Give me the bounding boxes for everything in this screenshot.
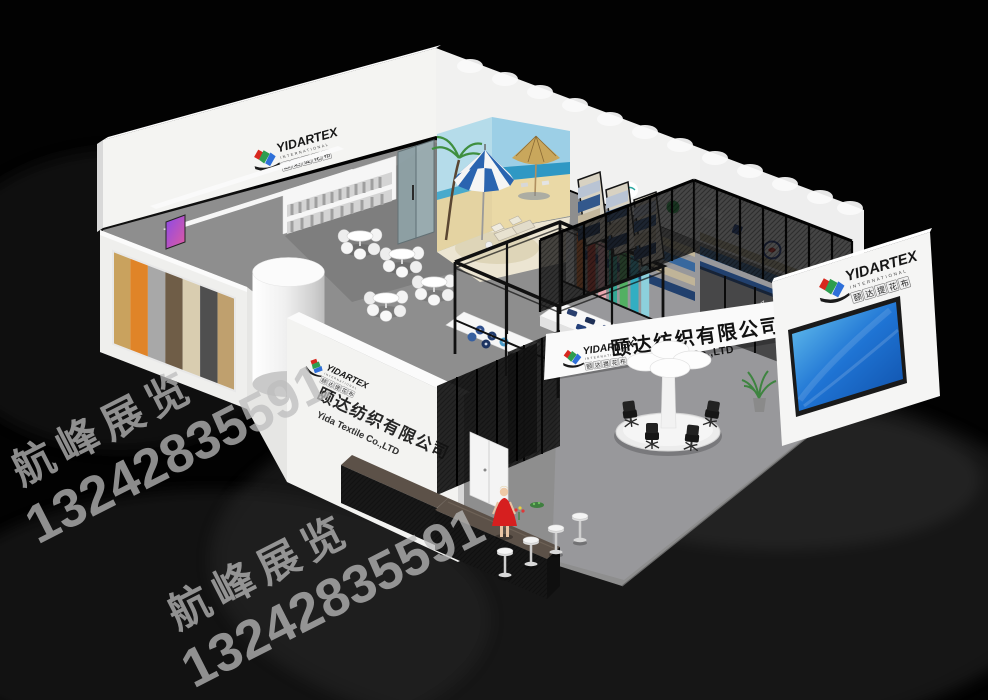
wall-end-cap [97, 140, 103, 232]
glass-doors [398, 140, 434, 244]
booth-render-svg: YIDARTEX INTERNATIONAL 颐达提花布 [0, 0, 988, 700]
booth-render: YIDARTEX INTERNATIONAL 颐达提花布 [0, 0, 988, 700]
